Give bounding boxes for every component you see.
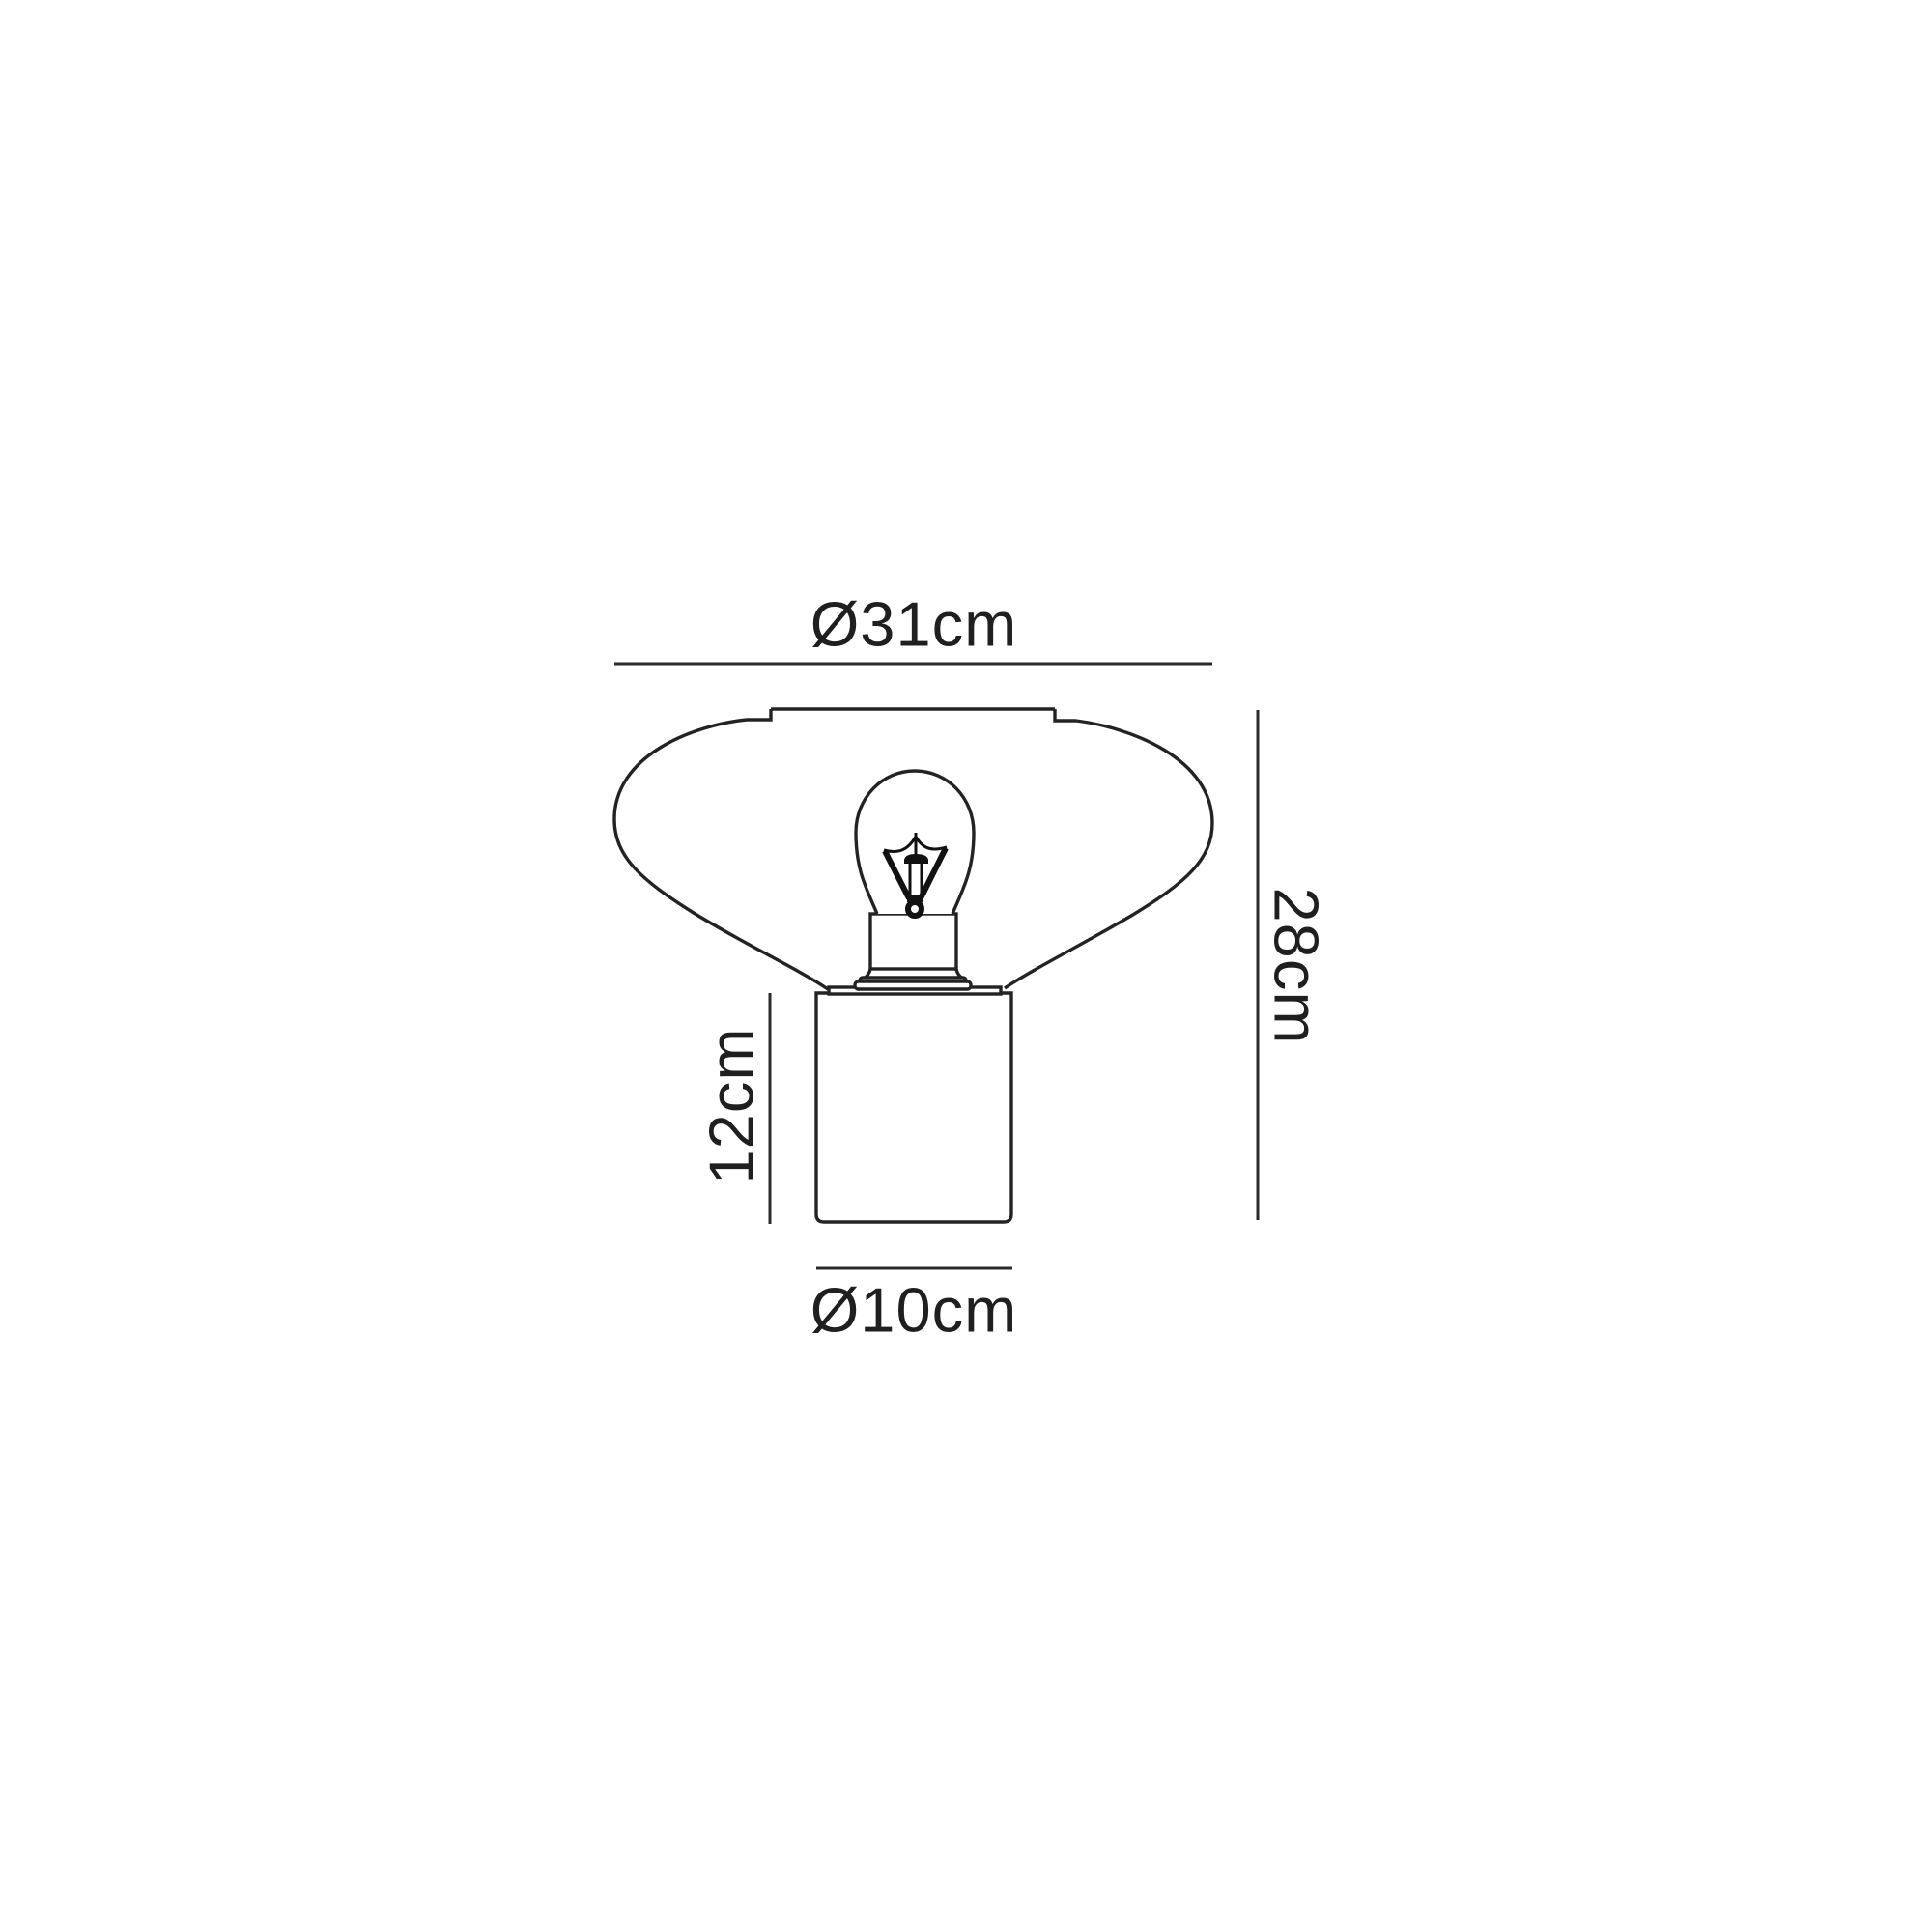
dimension-label-base-height: 12cm — [696, 1028, 767, 1185]
lamp-base — [816, 993, 1011, 1222]
lamp-socket — [855, 914, 971, 989]
dimension-total-height: 28cm — [1258, 710, 1332, 1220]
dimension-annotations: Ø31cm 28cm 12cm Ø10cm — [614, 589, 1332, 1346]
shade-left-profile — [614, 720, 828, 989]
shade-right-shoulder — [1055, 709, 1076, 721]
dimension-label-base-diameter: Ø10cm — [810, 1275, 1018, 1346]
filament-bead — [904, 854, 928, 864]
dimension-label-shade-diameter: Ø31cm — [810, 589, 1018, 660]
dimension-base-height: 12cm — [696, 993, 771, 1224]
socket-body — [870, 914, 956, 969]
dimension-label-total-height: 28cm — [1262, 888, 1332, 1045]
lamp-dimension-diagram: Ø31cm 28cm 12cm Ø10cm — [0, 0, 1932, 1932]
shade-right-profile — [1005, 721, 1212, 988]
dimension-shade-diameter: Ø31cm — [614, 589, 1212, 665]
dimension-base-diameter: Ø10cm — [810, 1268, 1018, 1346]
diagram-canvas: Ø31cm 28cm 12cm Ø10cm — [0, 0, 1932, 1932]
shade-left-shoulder — [747, 709, 771, 720]
socket-flange-lower — [855, 981, 971, 989]
